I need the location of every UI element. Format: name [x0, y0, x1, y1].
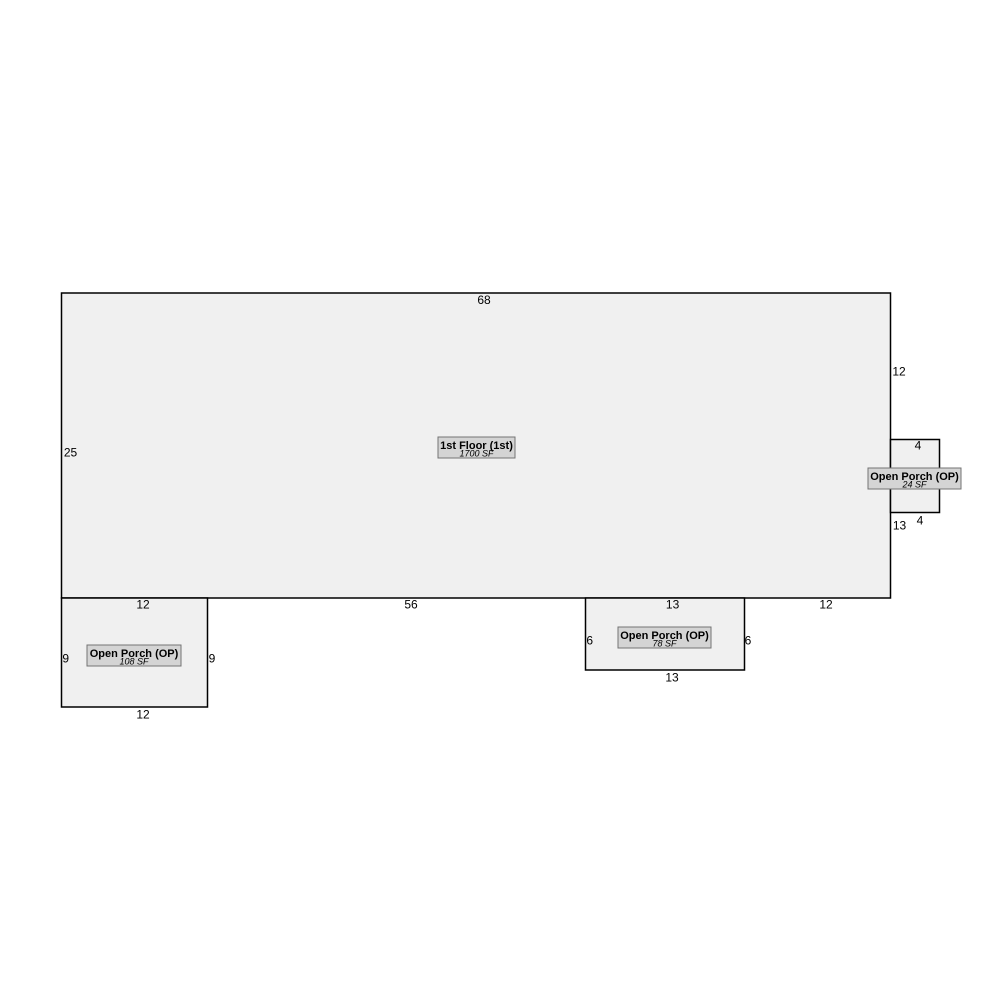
svg-text:25: 25: [64, 445, 78, 459]
svg-text:108 SF: 108 SF: [119, 657, 149, 667]
svg-text:13: 13: [665, 670, 679, 684]
svg-text:24 SF: 24 SF: [901, 480, 927, 490]
svg-text:12: 12: [136, 707, 150, 721]
svg-text:56: 56: [404, 597, 418, 611]
svg-text:13: 13: [666, 597, 680, 611]
svg-text:9: 9: [209, 651, 216, 665]
svg-text:9: 9: [62, 651, 69, 665]
svg-text:1700 SF: 1700 SF: [459, 449, 494, 459]
svg-text:78 SF: 78 SF: [652, 639, 677, 649]
svg-text:12: 12: [819, 597, 833, 611]
svg-text:68: 68: [477, 293, 491, 307]
svg-text:6: 6: [586, 633, 593, 647]
svg-text:4: 4: [917, 513, 924, 527]
svg-text:13: 13: [893, 518, 907, 532]
svg-text:12: 12: [136, 597, 150, 611]
svg-text:6: 6: [745, 633, 752, 647]
svg-text:12: 12: [892, 364, 906, 378]
svg-text:4: 4: [915, 438, 922, 452]
